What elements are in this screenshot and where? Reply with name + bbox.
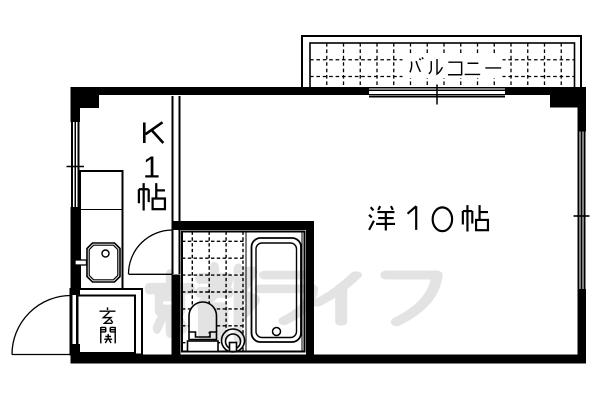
svg-text:1: 1 [143, 150, 160, 185]
